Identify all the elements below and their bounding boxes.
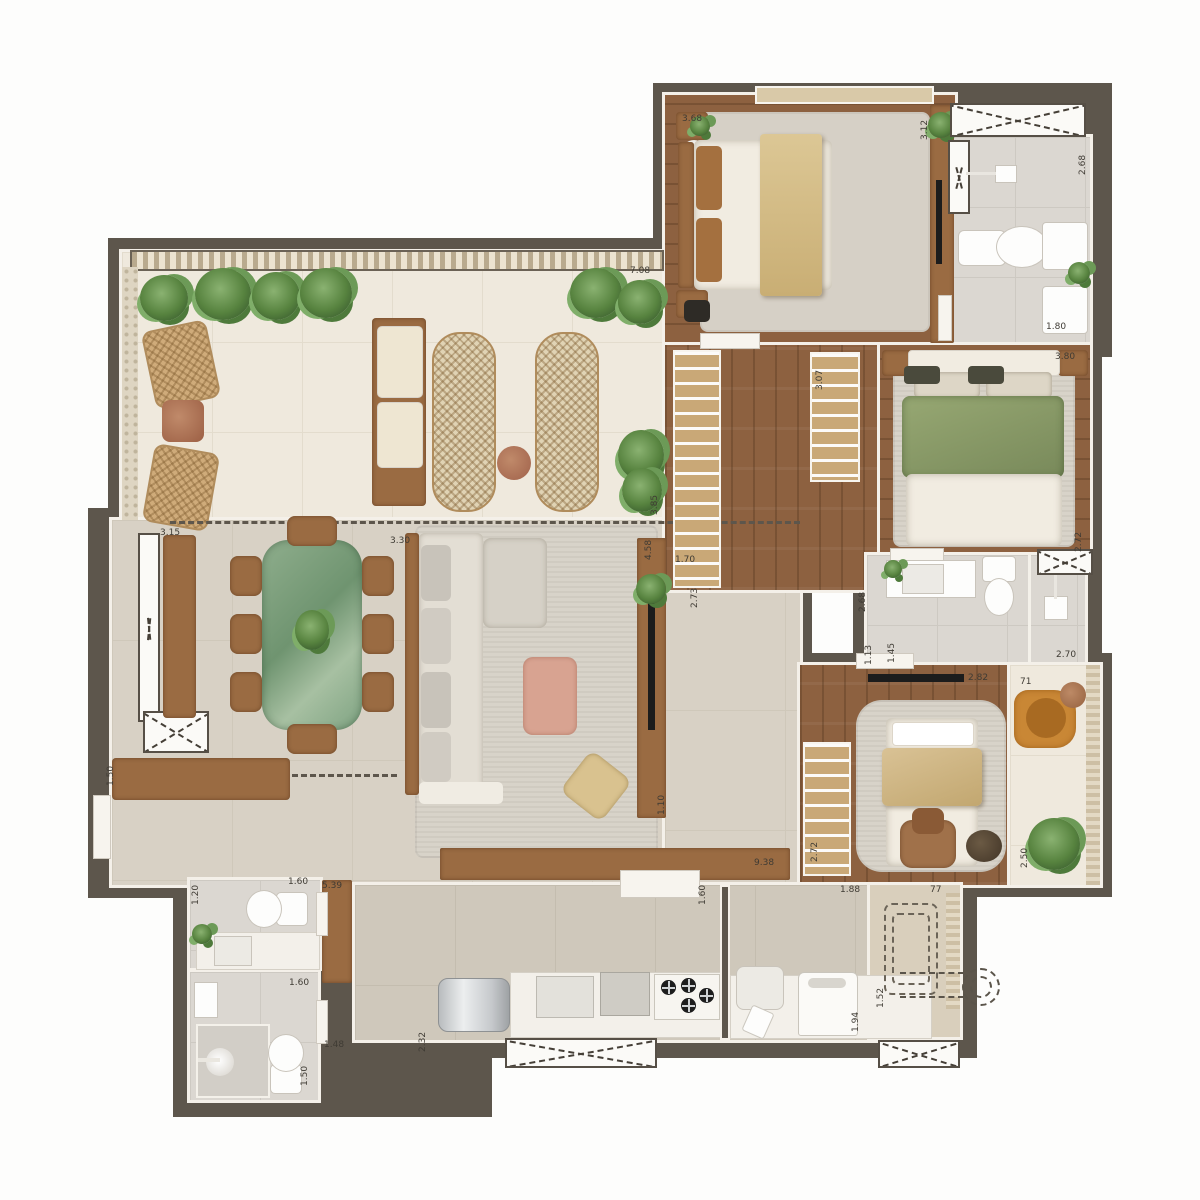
dimension-labels-layer: 7.083.853.683.122.681.803.803.071.702.73… bbox=[0, 0, 1200, 1200]
dimension-label: 1.70 bbox=[675, 555, 695, 565]
dimension-label: 2.70 bbox=[1056, 650, 1076, 660]
dimension-label: 4.58 bbox=[644, 540, 654, 560]
dimension-label: 7.08 bbox=[630, 266, 650, 276]
dimension-label: 1.45 bbox=[887, 643, 897, 663]
dimension-label: 1.94 bbox=[851, 1012, 861, 1032]
dimension-label: 2.68 bbox=[858, 592, 868, 612]
dimension-label: 1.88 bbox=[840, 885, 860, 895]
dimension-label: 1.60 bbox=[289, 978, 309, 988]
dimension-label: 3.15 bbox=[160, 528, 180, 538]
dimension-label: 2.73 bbox=[690, 588, 700, 608]
dimension-label: 3.07 bbox=[815, 370, 825, 390]
dimension-label: 1.50 bbox=[106, 766, 116, 786]
dimension-label: 2.82 bbox=[968, 673, 988, 683]
dimension-label: 3.80 bbox=[1055, 352, 1075, 362]
dimension-label: 2.72 bbox=[810, 842, 820, 862]
dimension-label: 1.80 bbox=[1046, 322, 1066, 332]
dimension-label: 1.48 bbox=[324, 1040, 344, 1050]
dimension-label: 9.38 bbox=[754, 858, 774, 868]
dimension-label: 2.68 bbox=[1078, 155, 1088, 175]
dimension-label: 1.52 bbox=[876, 988, 886, 1008]
dimension-label: 1.20 bbox=[191, 885, 201, 905]
dimension-label: 71 bbox=[1020, 677, 1031, 687]
dimension-label: 1.60 bbox=[698, 885, 708, 905]
dimension-label: 5.39 bbox=[322, 881, 342, 891]
dimension-label: 2.50 bbox=[1020, 848, 1030, 868]
dimension-label: 3.68 bbox=[682, 114, 702, 124]
dimension-label: 3.30 bbox=[390, 536, 410, 546]
dimension-label: 3.12 bbox=[920, 120, 930, 140]
dimension-label: 2.32 bbox=[418, 1032, 428, 1052]
dimension-label: 77 bbox=[930, 885, 941, 895]
floor-plan: 7.083.853.683.122.681.803.803.071.702.73… bbox=[0, 0, 1200, 1200]
dimension-label: 1.13 bbox=[864, 645, 874, 665]
dimension-label: 1.60 bbox=[288, 877, 308, 887]
dimension-label: 1.50 bbox=[300, 1066, 310, 1086]
dimension-label: 1.10 bbox=[657, 795, 667, 815]
dimension-label: 3.85 bbox=[650, 495, 660, 515]
dimension-label: 2.72 bbox=[1074, 532, 1084, 552]
